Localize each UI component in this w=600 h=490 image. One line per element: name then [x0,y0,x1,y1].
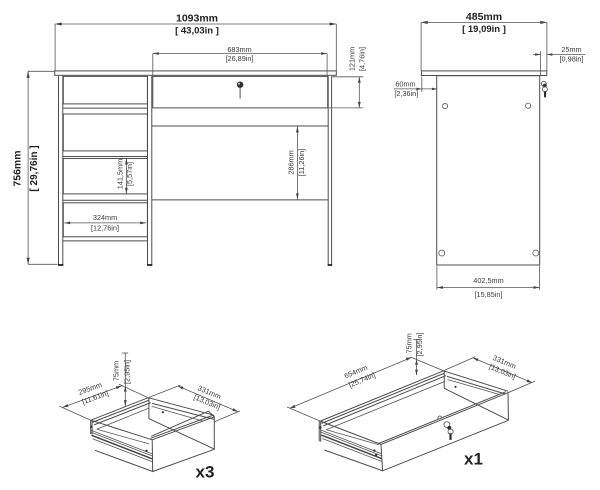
svg-text:[2,36in]: [2,36in] [394,89,418,98]
svg-text:x3: x3 [196,463,215,482]
svg-text:[4,76in]: [4,76in] [358,47,367,71]
svg-text:[2,95in]: [2,95in] [415,333,424,357]
svg-text:[0,98in]: [0,98in] [560,55,584,64]
svg-text:[12,76in]: [12,76in] [91,224,119,233]
svg-text:324mm: 324mm [93,213,117,222]
svg-text:402,5mm: 402,5mm [473,276,503,285]
svg-text:286mm: 286mm [287,150,296,174]
svg-text:[ 19,09in ]: [ 19,09in ] [462,24,506,35]
svg-text:1093mm: 1093mm [176,13,218,25]
svg-text:121mm: 121mm [348,47,357,71]
svg-text:[ 43,03in ]: [ 43,03in ] [175,26,219,37]
svg-text:75mm: 75mm [111,361,120,381]
svg-text:[ 29,76in ]: [ 29,76in ] [29,145,40,191]
svg-text:x1: x1 [464,450,483,469]
svg-text:[26,89in]: [26,89in] [226,54,254,63]
svg-text:75mm: 75mm [405,333,414,353]
svg-text:141,5mm: 141,5mm [116,159,125,189]
svg-text:60mm: 60mm [395,79,415,88]
svg-text:[5,57in]: [5,57in] [125,162,134,186]
svg-text:[11,26in]: [11,26in] [297,149,306,176]
svg-text:[2,95in]: [2,95in] [122,360,131,384]
svg-text:683mm: 683mm [227,45,251,54]
svg-text:485mm: 485mm [466,11,502,23]
svg-text:[15,85in]: [15,85in] [475,290,503,299]
svg-text:25mm: 25mm [561,45,581,54]
svg-text:756mm: 756mm [11,150,23,186]
